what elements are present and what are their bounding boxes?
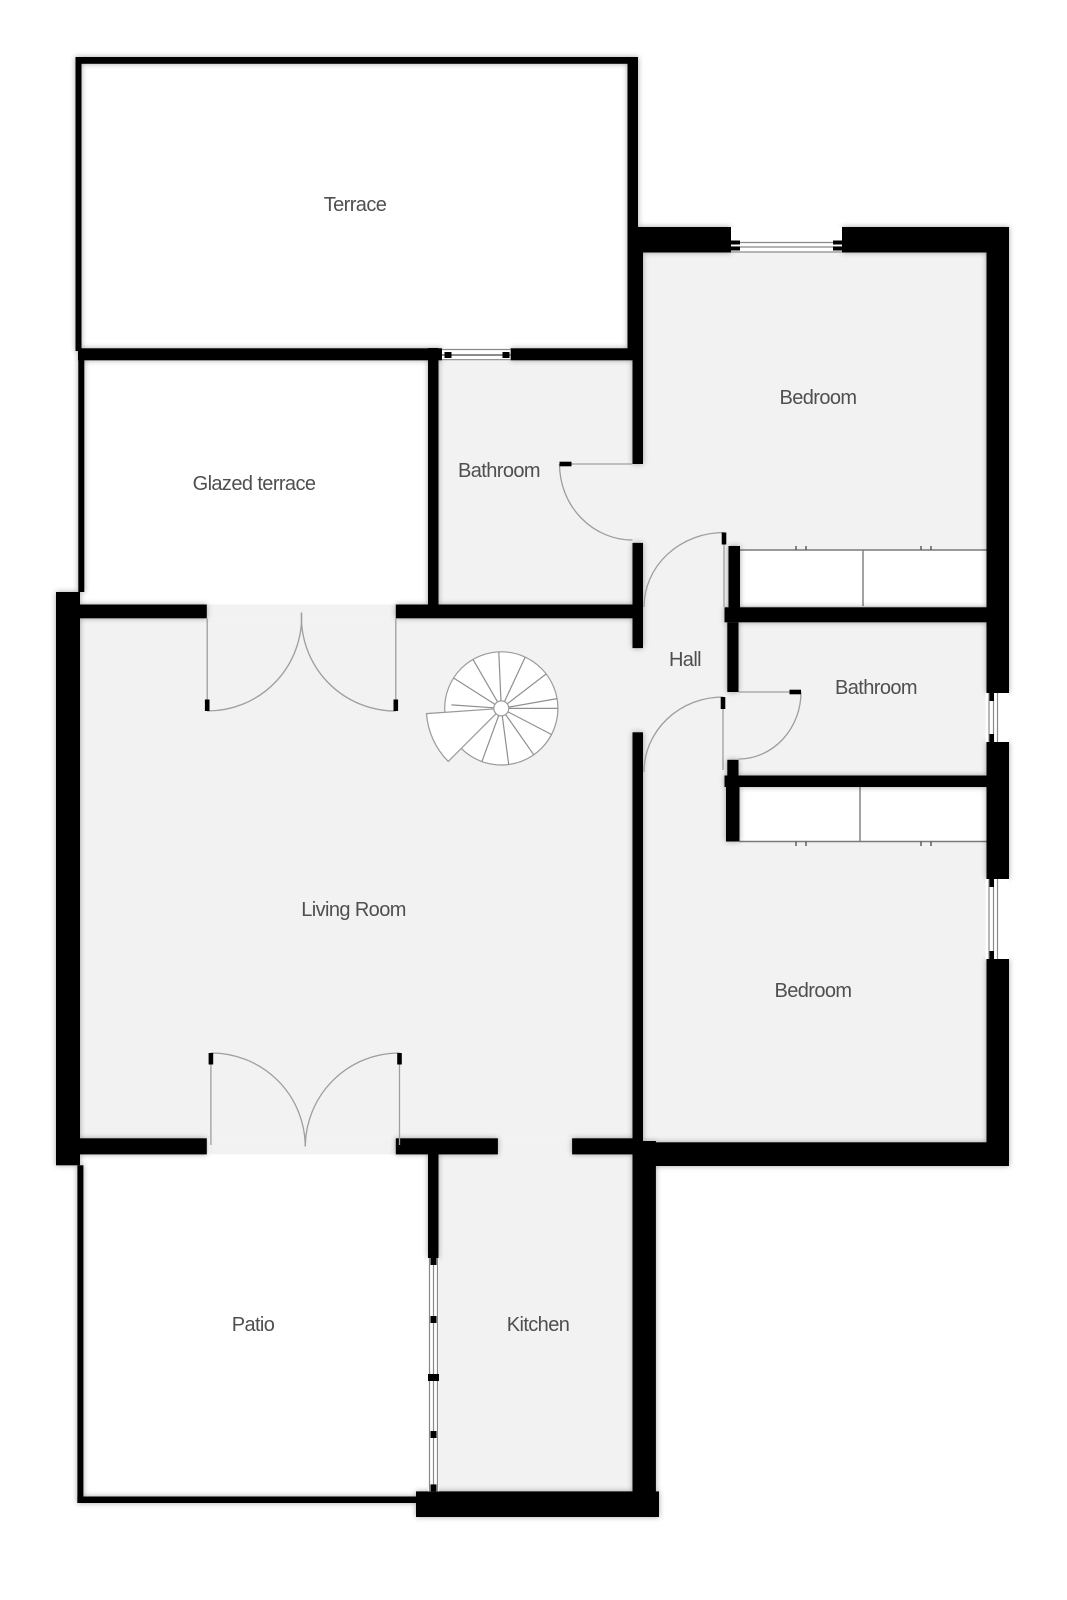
svg-text:Bedroom: Bedroom	[775, 980, 852, 1002]
svg-text:Terrace: Terrace	[324, 194, 387, 216]
svg-text:Kitchen: Kitchen	[507, 1314, 570, 1336]
svg-text:Patio: Patio	[232, 1314, 275, 1336]
svg-text:Bathroom: Bathroom	[458, 460, 540, 482]
svg-text:Bedroom: Bedroom	[780, 387, 857, 409]
svg-text:Hall: Hall	[669, 649, 701, 671]
svg-text:Glazed terrace: Glazed terrace	[193, 473, 316, 495]
svg-text:Bathroom: Bathroom	[835, 677, 917, 699]
svg-text:Living Room: Living Room	[301, 899, 406, 921]
